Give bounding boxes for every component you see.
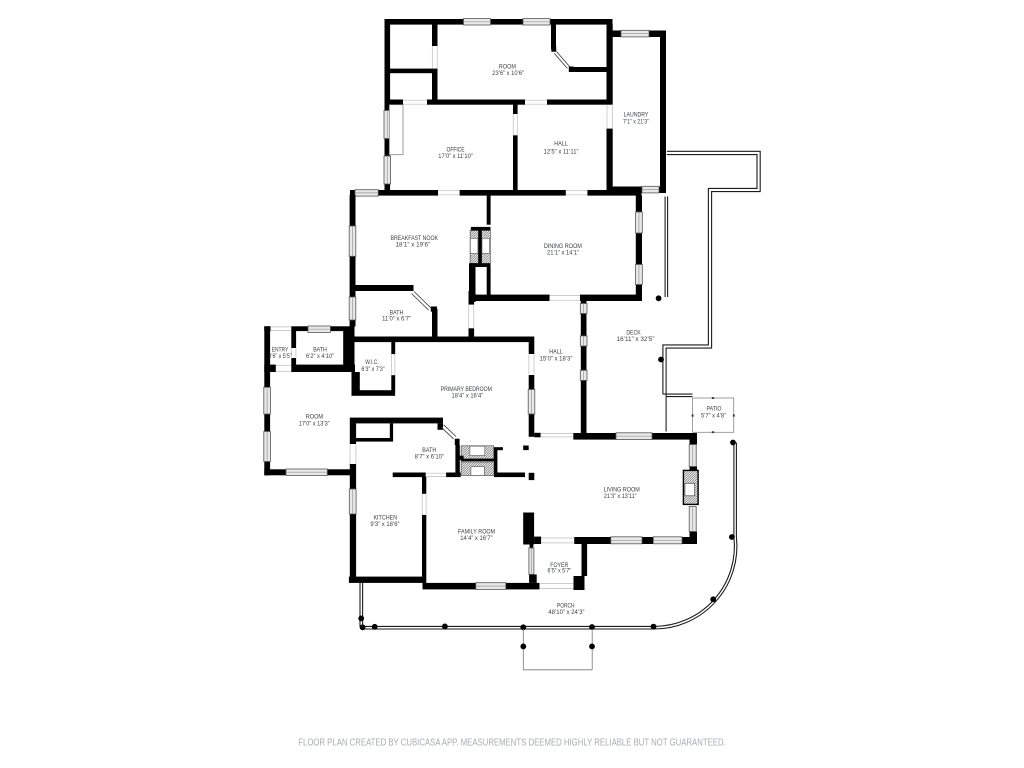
svg-text:18’1” x 19’6”: 18’1” x 19’6” xyxy=(396,242,431,248)
svg-text:6’5” x 5’7”: 6’5” x 5’7” xyxy=(548,569,572,575)
svg-text:ENTRY: ENTRY xyxy=(272,348,289,354)
svg-text:6’3” x 7’3”: 6’3” x 7’3” xyxy=(361,367,384,373)
svg-text:14’4” x 16’7”: 14’4” x 16’7” xyxy=(460,536,492,542)
svg-text:7’1” x 21’3”: 7’1” x 21’3” xyxy=(623,119,649,125)
svg-text:48’10” x 24’3”: 48’10” x 24’3” xyxy=(548,610,584,616)
svg-text:HALL: HALL xyxy=(554,141,568,147)
svg-text:BREAKFAST NOOK: BREAKFAST NOOK xyxy=(391,236,439,242)
svg-text:PORCH: PORCH xyxy=(557,604,575,610)
svg-text:BATH: BATH xyxy=(313,347,327,353)
svg-text:6’2” x 4’10”: 6’2” x 4’10” xyxy=(306,354,334,360)
svg-text:15’0” x 18’3”: 15’0” x 18’3” xyxy=(540,357,573,363)
svg-text:BATH: BATH xyxy=(422,448,436,454)
svg-text:OFFICE: OFFICE xyxy=(447,147,465,153)
svg-text:17’0” x 13’3”: 17’0” x 13’3” xyxy=(299,421,330,427)
svg-text:ROOM: ROOM xyxy=(306,415,323,421)
svg-text:W.I.C.: W.I.C. xyxy=(365,360,379,366)
svg-text:21’1” x 14’1”: 21’1” x 14’1” xyxy=(547,251,579,257)
svg-text:BATH: BATH xyxy=(390,310,404,316)
svg-text:11’0” x 6’7”: 11’0” x 6’7” xyxy=(382,317,411,323)
svg-text:18’4” x 16’4”: 18’4” x 16’4” xyxy=(452,394,484,400)
svg-text:LAUNDRY: LAUNDRY xyxy=(624,112,649,118)
svg-text:5’7” x 4’8”: 5’7” x 4’8” xyxy=(701,414,726,420)
svg-text:21’3” x 13’11”: 21’3” x 13’11” xyxy=(604,494,637,500)
svg-text:3’6” x 5’5”: 3’6” x 5’5” xyxy=(268,354,291,360)
svg-text:ROOM: ROOM xyxy=(499,65,516,71)
svg-text:PATIO: PATIO xyxy=(707,407,722,413)
svg-text:17’0” x 11’10”: 17’0” x 11’10” xyxy=(438,154,473,160)
svg-text:HALL: HALL xyxy=(549,350,563,356)
svg-text:16’11” x 32’5”: 16’11” x 32’5” xyxy=(617,337,655,343)
svg-text:DINING ROOM: DINING ROOM xyxy=(544,244,582,250)
svg-text:9’3” x 18’6”: 9’3” x 18’6” xyxy=(370,522,399,528)
svg-text:12’5” x 11’11”: 12’5” x 11’11” xyxy=(544,149,579,155)
svg-text:FLOOR PLAN CREATED BY CUBICASA: FLOOR PLAN CREATED BY CUBICASA APP. MEAS… xyxy=(298,738,726,749)
svg-text:PRIMARY BEDROOM: PRIMARY BEDROOM xyxy=(441,387,492,393)
svg-text:FAMILY ROOM: FAMILY ROOM xyxy=(458,530,495,536)
svg-text:8’7” x 6’10”: 8’7” x 6’10” xyxy=(415,454,444,460)
svg-text:DECK: DECK xyxy=(626,331,640,337)
svg-text:23’6” x 10’6”: 23’6” x 10’6” xyxy=(492,71,524,77)
svg-text:KITCHEN: KITCHEN xyxy=(373,515,397,521)
svg-text:LIVING ROOM: LIVING ROOM xyxy=(604,487,640,493)
